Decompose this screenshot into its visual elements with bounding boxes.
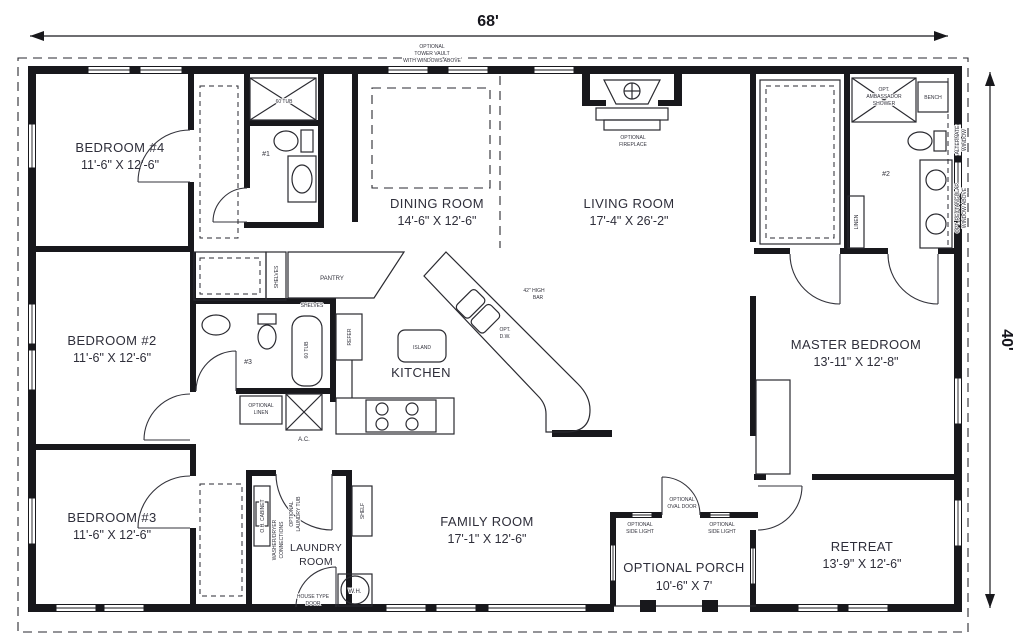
pantry xyxy=(288,252,404,298)
width-dimension-label: 68' xyxy=(477,13,499,30)
porch-size: 10'-6" X 7' xyxy=(656,579,712,593)
svg-text:OPTIONAL: OPTIONAL xyxy=(419,44,445,50)
svg-text:WITH WINDOWS ABOVE: WITH WINDOWS ABOVE xyxy=(403,58,461,64)
bedroom4-name: BEDROOM #4 xyxy=(75,140,164,155)
svg-text:D.W.: D.W. xyxy=(500,334,511,340)
bath3-label: #3 xyxy=(244,359,252,366)
laundry-name-1: LAUNDRY xyxy=(290,542,342,554)
bedroom4-size: 11'-6" X 12'-6" xyxy=(81,158,159,172)
toilet xyxy=(258,325,276,349)
master-closet-door xyxy=(790,254,840,304)
depth-dimension-label: 40' xyxy=(998,329,1015,351)
bedroom2-name: BEDROOM #2 xyxy=(67,333,156,348)
bedroom4-closet-rod xyxy=(200,86,238,238)
svg-text:HOUSE TYPE: HOUSE TYPE xyxy=(297,594,330,600)
bath3-door xyxy=(196,351,236,391)
retreat-name: RETREAT xyxy=(831,539,894,554)
family-size: 17'-1" X 12'-6" xyxy=(448,532,527,546)
bath3: #3 60 TUB OPTIONAL LINEN A.C. xyxy=(202,314,322,443)
bedroom3-size: 11'-6" X 12'-6" xyxy=(73,528,151,542)
bedroom3-closet-rod xyxy=(200,484,242,596)
master-niche xyxy=(756,380,790,474)
svg-text:SIDE LIGHT: SIDE LIGHT xyxy=(626,529,654,535)
hearth xyxy=(596,108,668,120)
master-closet-rod xyxy=(766,86,834,238)
bath1: 60 TUB #1 xyxy=(250,78,316,202)
depth-dimension: 40' xyxy=(985,72,1015,608)
svg-text:FIREPLACE: FIREPLACE xyxy=(619,142,647,148)
high-bar xyxy=(424,252,590,432)
svg-text:DOOR: DOOR xyxy=(306,601,321,607)
svg-text:OPTIONAL: OPTIONAL xyxy=(289,501,295,527)
sink xyxy=(202,315,230,335)
svg-text:42" HIGH: 42" HIGH xyxy=(523,288,545,294)
bath1-label: #1 xyxy=(262,151,270,158)
porch-post xyxy=(640,600,656,612)
bedroom2-size: 11'-6" X 12'-6" xyxy=(73,351,151,365)
svg-text:LINEN: LINEN xyxy=(854,214,860,229)
living-name: LIVING ROOM xyxy=(583,196,674,211)
master-name: MASTER BEDROOM xyxy=(791,337,922,352)
svg-text:SHELVES: SHELVES xyxy=(274,265,280,288)
fireplace: OPTIONAL FIREPLACE xyxy=(582,74,682,148)
svg-text:TOWER VAULT: TOWER VAULT xyxy=(414,51,449,57)
svg-text:LAUNDRY TUB: LAUNDRY TUB xyxy=(296,496,302,532)
dining-name: DINING ROOM xyxy=(390,196,484,211)
svg-text:W.H.: W.H. xyxy=(349,589,362,595)
toilet xyxy=(908,132,932,150)
master-bath-door xyxy=(888,254,938,304)
floor-plan-canvas: 68' 40' xyxy=(0,0,1017,643)
svg-text:REFER: REFER xyxy=(347,328,353,345)
floor-plan-page: 68' 40' xyxy=(0,0,1017,643)
kitchen-name: KITCHEN xyxy=(391,365,451,380)
svg-text:OPTIONAL: OPTIONAL xyxy=(669,497,695,503)
svg-text:OPTIONAL: OPTIONAL xyxy=(620,135,646,141)
tub-label: 60 TUB xyxy=(276,99,294,105)
dining-size: 14'-6" X 12'-6" xyxy=(398,214,477,228)
svg-text:OPTIONAL: OPTIONAL xyxy=(248,403,274,409)
svg-text:SHELVES: SHELVES xyxy=(301,303,324,309)
retreat-door xyxy=(758,486,802,530)
living-size: 17'-4" X 26'-2" xyxy=(590,214,669,228)
master-suite: LINEN OPT. AMBASSADOR SHOWER BENCH #2 AL… xyxy=(756,78,968,474)
svg-text:OPT.: OPT. xyxy=(499,327,510,333)
double-sink xyxy=(455,288,502,335)
svg-text:BAR: BAR xyxy=(533,295,544,301)
porch-name: OPTIONAL PORCH xyxy=(623,560,744,575)
svg-text:BENCH: BENCH xyxy=(924,95,942,101)
svg-text:O.H. CABINET: O.H. CABINET xyxy=(260,499,266,532)
double-vanity xyxy=(920,160,952,248)
bedroom2-closet-rod xyxy=(200,258,260,294)
svg-text:ALTERNATE: ALTERNATE xyxy=(955,125,961,154)
master-size: 13'-11" X 12'-8" xyxy=(814,355,899,369)
bath1-door xyxy=(213,188,247,222)
bedroom3-name: BEDROOM #3 xyxy=(67,510,156,525)
svg-text:AMBASSADOR: AMBASSADOR xyxy=(866,94,902,100)
svg-text:OPTIONAL: OPTIONAL xyxy=(709,522,735,528)
width-dimension: 68' xyxy=(30,13,948,41)
bedroom2-door xyxy=(144,394,190,440)
svg-text:OPT.: OPT. xyxy=(878,87,889,93)
bedroom4-door xyxy=(138,130,190,182)
toilet xyxy=(274,131,298,151)
svg-text:OPTIONAL: OPTIONAL xyxy=(627,522,653,528)
svg-text:SIDE LIGHT: SIDE LIGHT xyxy=(708,529,736,535)
svg-text:SHELF: SHELF xyxy=(360,503,366,519)
svg-text:PANTRY: PANTRY xyxy=(320,276,344,282)
svg-text:A.C.: A.C. xyxy=(298,437,310,443)
family-name: FAMILY ROOM xyxy=(440,514,534,529)
svg-text:WINDOW: WINDOW xyxy=(962,129,968,151)
bath2-label: #2 xyxy=(882,171,890,178)
svg-text:ISLAND: ISLAND xyxy=(413,345,431,351)
svg-text:WINDOW ABOVE: WINDOW ABOVE xyxy=(962,187,968,228)
kitchen-fixtures: REFER ISLAND 42" HIGH BAR OPT. D.W. xyxy=(336,252,590,434)
svg-text:SHOWER: SHOWER xyxy=(873,101,896,107)
retreat-size: 13'-9" X 12'-6" xyxy=(823,557,902,571)
svg-text:60 TUB: 60 TUB xyxy=(304,341,310,359)
porch-post xyxy=(702,600,718,612)
svg-text:CONNECTIONS: CONNECTIONS xyxy=(279,521,285,559)
laundry-name-2: ROOM xyxy=(299,556,333,568)
svg-text:LINEN: LINEN xyxy=(254,410,269,416)
tower-vault-dashed xyxy=(372,88,490,188)
svg-text:WASHER/DRYER: WASHER/DRYER xyxy=(272,519,278,560)
tower-vault-note: OPTIONAL TOWER VAULT WITH WINDOWS ABOVE xyxy=(403,44,461,64)
svg-text:OVAL DOOR: OVAL DOOR xyxy=(667,504,697,510)
svg-text:OPT. RECTANGULAR: OPT. RECTANGULAR xyxy=(955,183,961,233)
